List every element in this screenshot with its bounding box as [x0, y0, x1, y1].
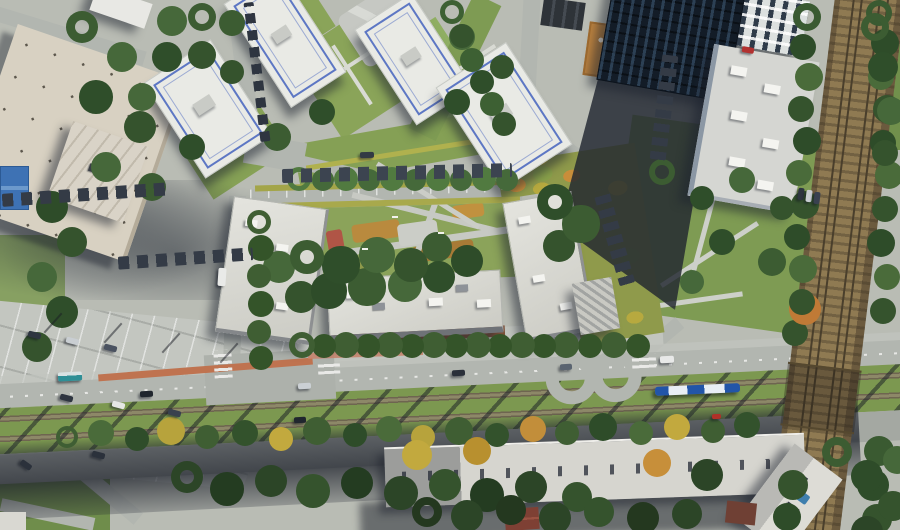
crosswalk-side [318, 361, 341, 374]
bench [362, 248, 368, 250]
roof-unit-dark [254, 271, 269, 281]
hvac-unit [762, 138, 779, 150]
dev-building-west [215, 196, 329, 345]
roof-unit [532, 274, 545, 283]
trees-bottom-band [180, 470, 194, 484]
trees-ne-corner [868, 20, 882, 34]
roof-unit [429, 298, 443, 307]
trees-office-lawn [655, 165, 669, 179]
hvac-unit [728, 156, 745, 168]
aerial-render [0, 0, 900, 530]
trees-west-street [252, 215, 266, 229]
roof-unit-dark [456, 284, 468, 292]
bench [438, 232, 444, 234]
roof-unit [276, 243, 289, 252]
trees-center-cluster [300, 250, 314, 264]
dumpster-shelter [540, 0, 585, 31]
crosswalk-east [632, 353, 657, 368]
roof-unit [398, 285, 412, 294]
railway-bridge-deck [780, 362, 861, 435]
car [294, 417, 306, 424]
hvac-unit [757, 180, 774, 192]
trees-railway-east [872, 6, 886, 20]
trees-dev-ne-pair [548, 195, 562, 209]
white-sliver-bottom-left [0, 512, 26, 530]
trees-bottom-right-corner [830, 445, 844, 459]
hvac-unit [730, 110, 747, 122]
car [298, 383, 311, 390]
roof-unit [346, 290, 360, 299]
trees-bottom-edge [420, 505, 434, 519]
van-white [660, 356, 674, 364]
roof-unit-dark [784, 501, 800, 516]
playground-red-2 [341, 259, 355, 275]
crosswalk-west [213, 350, 232, 379]
car [452, 370, 465, 377]
hvac-unit [730, 65, 747, 77]
roof-bulkhead [489, 103, 513, 125]
car-red [712, 414, 721, 419]
roof-unit [477, 299, 491, 308]
dev-building-south [326, 269, 503, 341]
roof-unit-dark [547, 239, 560, 248]
car [140, 391, 153, 398]
small-white-building-topleft [89, 0, 152, 29]
roof-bulkhead [271, 24, 293, 44]
roof-unit [276, 302, 289, 311]
rooftop-units-row [402, 458, 789, 481]
van-dev-street [360, 152, 374, 158]
trees-railway-west [800, 10, 814, 24]
trees-dev-sidewalk-row [295, 338, 309, 352]
roof-unit-dark [792, 470, 808, 485]
red-roof-house-2 [725, 500, 757, 525]
truck-west-street [217, 268, 226, 287]
trees-avenue-row [60, 430, 74, 444]
roof-unit [518, 216, 531, 225]
roof-bulkhead [400, 46, 422, 66]
trees-estate [195, 10, 209, 24]
roof-unit [88, 163, 108, 176]
bus-vehicle [58, 371, 82, 381]
hvac-unit [764, 83, 781, 95]
car [560, 364, 572, 371]
trees-hedge-row [445, 5, 459, 19]
trees-top-left [75, 20, 89, 34]
roof-unit-dark [373, 303, 385, 311]
red-roof-house-1 [504, 507, 539, 530]
roof-bulkhead [192, 94, 216, 116]
bench [392, 216, 398, 218]
roof-unit [560, 302, 573, 311]
